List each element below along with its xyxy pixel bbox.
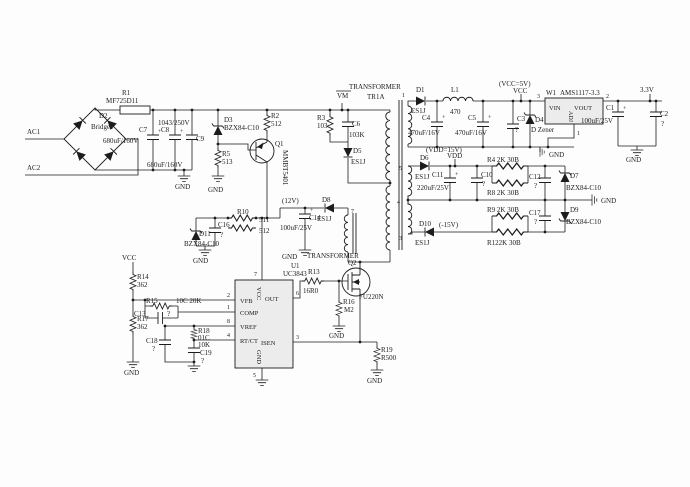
label-r16-ref: R16 (343, 298, 355, 306)
label-c19-val: ? (201, 357, 204, 365)
label-d7-ref: D7 (570, 172, 579, 180)
label-c12-ref: C12 (529, 173, 541, 181)
label-c4-ref: C4 (422, 114, 431, 122)
label-r18-val2: 10K (198, 341, 210, 349)
label-d3-val: BZX84-C10 (224, 124, 260, 132)
label-vdd-net: VDD (447, 152, 462, 160)
label-gnd-r17: GND (124, 369, 139, 377)
label-ac1: AC1 (27, 128, 41, 136)
label-u1-vfb: VFB (240, 298, 253, 305)
label-c3-val: ? (515, 126, 518, 134)
label-u1-n5: 5 (253, 373, 256, 379)
label-gnd-mid: GND (601, 197, 616, 205)
label-c8-ref: C8 (161, 126, 170, 134)
label-d9-val: BZX84-C10 (566, 218, 602, 226)
label-u1-n6: 6 (296, 291, 299, 297)
transistor-q1 (250, 139, 274, 163)
label-c17-ref: C17 (529, 209, 541, 217)
label-q2-val: FU220N (359, 293, 384, 301)
label-u1-ref: U1 (291, 262, 300, 270)
label-u1-n4: 4 (227, 333, 230, 339)
label-c18-ref: C18 (146, 337, 158, 345)
label-c17-val: ? (534, 218, 537, 226)
label-w1-ref: W1 (546, 89, 557, 97)
label-d8-ref: D8 (322, 196, 331, 204)
label-u1-n2: 2 (227, 293, 230, 299)
label-r1-ref: R1 (122, 89, 131, 97)
label-r1-val: MF725D11 (106, 97, 139, 105)
label-u1-n1: 1 (227, 305, 230, 311)
label-r19-val: R500 (381, 354, 397, 362)
label-r2-val: 512 (271, 120, 282, 128)
label-c2-ref: C2 (660, 110, 669, 118)
label-pin3: 3 (399, 236, 402, 242)
label-c1-ref: C1 (606, 104, 615, 112)
label-gnd-d11: GND (193, 257, 208, 265)
label-w1-val: AMS1117-3.3 (560, 89, 600, 97)
label-c7-ref: C7 (139, 126, 148, 134)
label-d10-ref: D10 (419, 220, 432, 228)
label-r9: R9 2K 30B (487, 206, 519, 214)
label-r4: R4 2K 30B (487, 156, 519, 164)
label-q1-ref: Q1 (275, 140, 284, 148)
diodes (190, 97, 571, 241)
label-c9-ref: C9 (196, 135, 205, 143)
label-r5-ref: R5 (222, 150, 231, 158)
labels: AC1 AC2 D2 Bridge1 R1 MF725D11 C7 680uF/… (27, 80, 669, 385)
label-u1-rtct: RT/CT (240, 338, 258, 345)
label-gnd-c14: GND (282, 253, 297, 261)
label-u1-out: OUT (265, 296, 278, 303)
label-u1-vcc: VCC (255, 287, 262, 300)
label-d7-val: BZX84-C10 (566, 184, 602, 192)
label-d11-ref: D11 (199, 230, 211, 238)
label-d5-val: ES1J (351, 158, 366, 166)
label-u1-gnd: GND (255, 350, 262, 364)
inductor-l1 (443, 97, 473, 101)
label-r10-ref: R10 (237, 208, 249, 216)
label-l1-ref: L1 (451, 86, 459, 94)
label-gnd-c1c2: GND (626, 156, 641, 164)
label-w1-pin2: 2 (606, 94, 609, 100)
label-d3-ref: D3 (224, 116, 233, 124)
label-w1-adj: ADJ (567, 111, 573, 123)
capacitors (147, 112, 662, 353)
label-transformer: TRANSFORMER (349, 83, 401, 91)
label-w1-vin: VIN (549, 105, 561, 112)
label-u1-n7: 7 (254, 272, 257, 278)
label-ac2: AC2 (27, 164, 41, 172)
label-r8: R8 2K 30B (487, 189, 519, 197)
label-pin5: 5 (399, 166, 402, 172)
label-u1-val: UC3843 (283, 270, 307, 278)
label-c10-val: ? (482, 180, 485, 188)
label-r13-ref: R13 (308, 268, 320, 276)
plus-c8: + (180, 129, 184, 135)
label-c16-val: ? (220, 231, 223, 239)
label-r10-val: 511 (259, 216, 270, 224)
label-c5-val: 470uF/16V (455, 129, 487, 137)
label-tr1a: TR1A (367, 93, 385, 101)
label-12v: (12V) (282, 197, 299, 205)
label-l1-val: 470 (450, 108, 461, 116)
label-r16-val: M2 (344, 306, 354, 314)
label-d6-ref: D6 (420, 154, 429, 162)
label-c11-ref: C11 (432, 171, 444, 179)
label-r17-ref: R17 (137, 315, 149, 323)
label-c9-val: 1043/250V (158, 119, 190, 127)
label-c6-val: 103K (349, 131, 365, 139)
label-3v3: 3.3V (640, 86, 654, 94)
label-q2-ref: Q2 (348, 259, 357, 267)
label-vm: VM (337, 92, 349, 100)
label-c14-val: 100uF/25V (280, 224, 312, 232)
label-c2-val: ? (661, 120, 664, 128)
label-d5-ref: D5 (353, 147, 362, 155)
label-r14-ref: R14 (137, 273, 149, 281)
label-pin7: 7 (351, 209, 354, 215)
transformer-tr1a (386, 100, 412, 250)
label-pin4: 4 (397, 200, 400, 206)
label-w1-pin3: 3 (537, 94, 540, 100)
label-vcc-ctrl: VCC (122, 254, 137, 262)
label-c1-val: 100uF/25V (581, 117, 613, 125)
label-neg15: (-15V) (439, 221, 459, 229)
label-d4-val: D Zener (531, 126, 555, 134)
plus-c5: + (488, 115, 492, 121)
label-vcc-net: VCC (513, 87, 528, 95)
label-u1-isen: ISEN (261, 340, 276, 347)
label-c18-val: ? (152, 345, 155, 353)
label-d1-ref: D1 (416, 86, 425, 94)
label-c3-ref: C3 (517, 115, 526, 123)
plus-c4: + (442, 115, 446, 121)
label-r11-val: 512 (259, 227, 270, 235)
label-r17-val: 362 (137, 323, 148, 331)
label-u1-vref: VREF (240, 324, 257, 331)
label-c12-val: ? (534, 182, 537, 190)
label-d2-ref: D2 (99, 112, 108, 120)
label-q1-val: MMBT5401 (281, 150, 289, 186)
label-u1-n8: 8 (227, 319, 230, 325)
label-r19-ref: R19 (381, 346, 393, 354)
schematic-canvas: AC1 AC2 D2 Bridge1 R1 MF725D11 C7 680uF/… (0, 0, 690, 487)
label-r3-val: 103 (317, 122, 328, 130)
label-c14-ref: C14 (309, 214, 321, 222)
label-r3-ref: R3 (317, 114, 326, 122)
label-r13-val: 16R0 (303, 287, 319, 295)
label-pin1: 1 (402, 93, 405, 99)
plus-c1: + (623, 106, 627, 112)
fuse-resistor-r1 (120, 106, 150, 114)
label-d6-val: ES1J (415, 173, 430, 181)
label-d10-val: ES1J (415, 239, 430, 247)
label-w1-vout: VOUT (574, 105, 592, 112)
label-c7-val: 680uF/160V (103, 137, 138, 145)
label-gnd-input: GND (175, 183, 190, 191)
label-c8-val: 680uF/160V (147, 161, 182, 169)
label-r5-val: 513 (222, 158, 233, 166)
label-c19-ref: C19 (200, 349, 212, 357)
label-w1-pin1: 1 (577, 131, 580, 137)
label-gnd-d4: GND (549, 151, 564, 159)
label-r15-val: 10C 20K (176, 297, 201, 305)
label-gnd-r19: GND (367, 377, 382, 385)
label-c16-ref: C16 (218, 221, 230, 229)
label-d2-val: Bridge1 (91, 123, 114, 131)
label-u1-n3: 3 (296, 335, 299, 341)
label-r12: R122K 30B (487, 239, 521, 247)
label-d9-ref: D9 (570, 206, 579, 214)
label-r2-ref: R2 (271, 112, 280, 120)
label-gnd-r5: GND (208, 186, 223, 194)
label-d4-ref: D4 (535, 116, 544, 124)
label-c11-val: 220uF/25V (417, 184, 449, 192)
plus-c11: + (455, 172, 459, 178)
label-u1-comp: COMP (240, 310, 259, 317)
label-r14-val: 362 (137, 281, 148, 289)
label-r15-ref: R15 (146, 297, 158, 305)
label-c6-ref: C6 (352, 120, 361, 128)
circuit-schematic: AC1 AC2 D2 Bridge1 R1 MF725D11 C7 680uF/… (0, 0, 690, 487)
label-c10-ref: C10 (481, 171, 493, 179)
label-c13-val: ? (167, 310, 170, 318)
label-c4-val: 470uF/16V (408, 129, 440, 137)
label-c5-ref: C5 (468, 114, 477, 122)
label-gnd-r16: GND (329, 332, 344, 340)
label-d11-val: BZX84-C10 (184, 240, 220, 248)
transformer-aux (344, 213, 356, 254)
